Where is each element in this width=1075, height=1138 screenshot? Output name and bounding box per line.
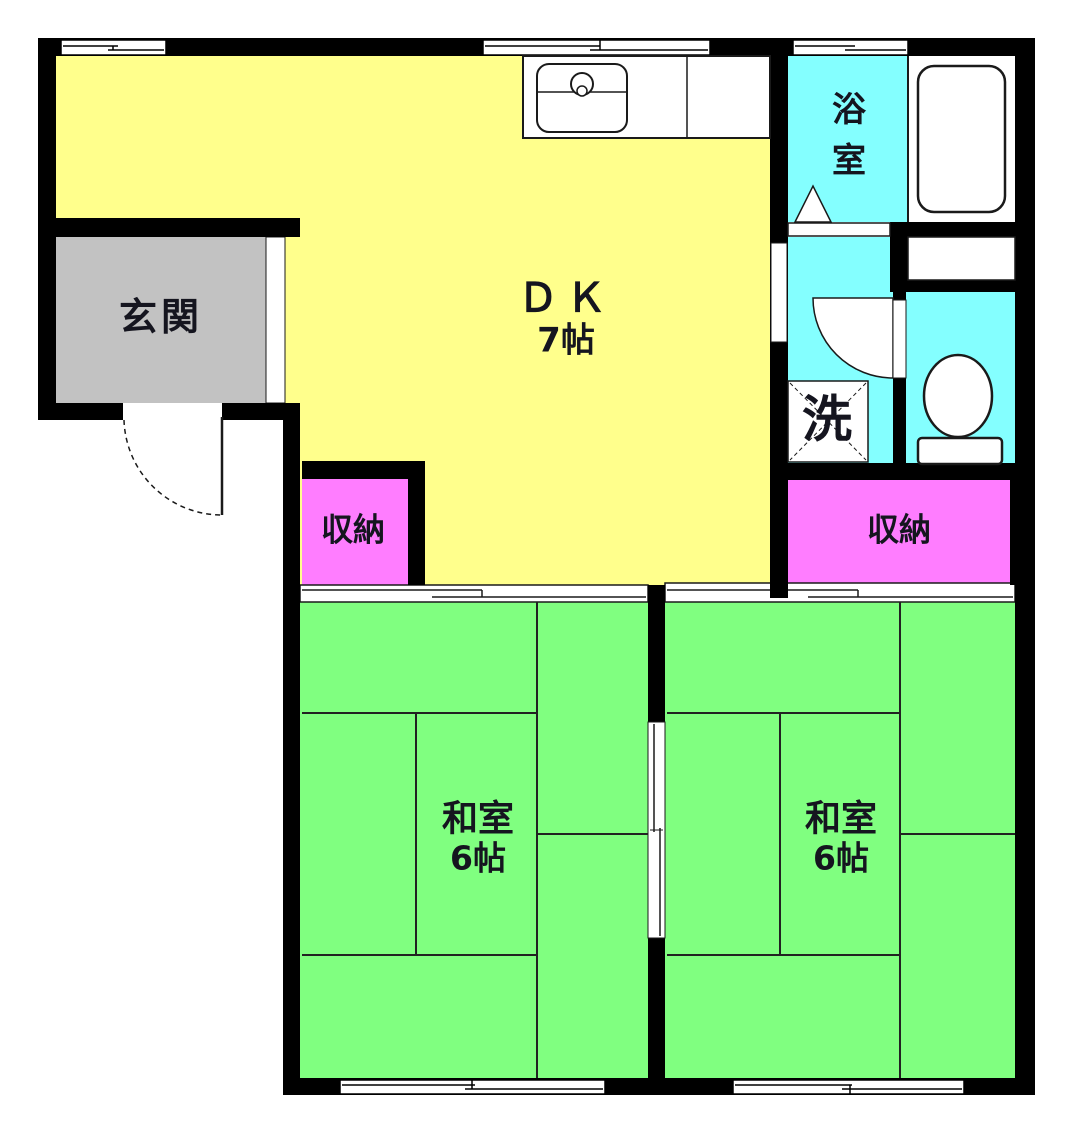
storage-left-label: 収納 [321, 512, 385, 549]
toilet-shelf [908, 237, 1015, 280]
washroom-door-opening [771, 243, 787, 342]
sliding-door [665, 583, 1015, 602]
sliding-window [733, 1080, 964, 1094]
storage-right-label: 収納 [867, 512, 931, 549]
wall [890, 222, 1015, 237]
wall [38, 218, 300, 237]
wall [302, 461, 425, 479]
wall [1010, 463, 1035, 585]
wall [648, 938, 665, 1078]
wall [283, 403, 300, 1095]
bathtub [918, 66, 1005, 212]
floor-plan-drawing [0, 0, 1075, 1138]
genkan-step-opening [266, 237, 285, 403]
washitsu-right-label: 和室 6帖 [805, 798, 877, 877]
entrance-door-swing [124, 420, 222, 515]
sliding-door [300, 585, 648, 602]
floor-plan: ＤＫ 7帖 玄関 浴室 洗 収納 収納 和室 6帖 和室 6帖 [0, 0, 1075, 1138]
wall [408, 461, 425, 585]
laundry-label: 洗 [802, 391, 852, 449]
floors [56, 56, 1015, 1078]
wall [890, 280, 1015, 292]
wall [770, 463, 1035, 480]
bathroom-door [788, 223, 890, 236]
wall [648, 585, 665, 722]
sliding-window [793, 40, 908, 55]
toilet-tank [918, 438, 1002, 464]
genkan-label: 玄関 [119, 296, 203, 340]
kitchen-counter [523, 56, 770, 138]
toilet-door [893, 300, 906, 378]
sliding-window [483, 40, 710, 55]
washitsu-left-label: 和室 6帖 [442, 798, 514, 877]
dk-label: ＤＫ 7帖 [518, 275, 614, 360]
entrance-door-opening [123, 404, 222, 419]
wall [38, 403, 123, 420]
bathroom-label: 浴室 [830, 85, 868, 187]
wall [222, 403, 300, 420]
toilet-bowl [924, 355, 992, 437]
